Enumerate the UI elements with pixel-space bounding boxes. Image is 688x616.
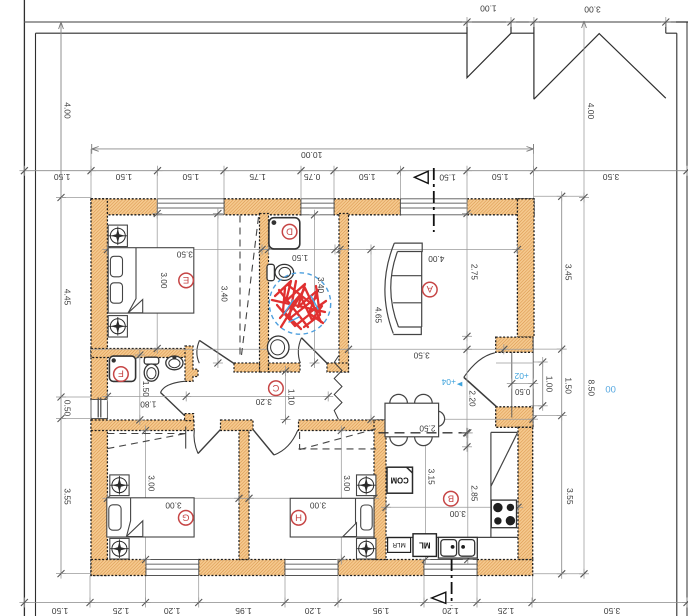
svg-text:1.50: 1.50: [54, 172, 71, 182]
svg-text:H: H: [295, 511, 302, 522]
svg-text:3.45: 3.45: [564, 264, 574, 281]
svg-text:1.50: 1.50: [492, 172, 509, 182]
svg-text:0.50: 0.50: [62, 400, 72, 417]
svg-text:3.40: 3.40: [220, 286, 230, 303]
svg-text:3.50: 3.50: [602, 172, 619, 182]
svg-text:1.50: 1.50: [182, 172, 199, 182]
svg-text:1.00: 1.00: [544, 376, 554, 393]
svg-text:1.50: 1.50: [292, 253, 309, 263]
svg-text:3.00: 3.00: [146, 475, 156, 492]
svg-text:MLR: MLR: [392, 541, 406, 548]
svg-text:COM: COM: [391, 475, 409, 484]
svg-text:0.50: 0.50: [514, 387, 530, 396]
svg-text:F: F: [118, 368, 124, 379]
svg-text:2.85: 2.85: [469, 485, 479, 502]
svg-text:2.50: 2.50: [419, 423, 436, 433]
svg-text:3.50: 3.50: [603, 606, 620, 616]
svg-text:D: D: [286, 225, 293, 236]
svg-text:E: E: [183, 274, 189, 285]
svg-text:1.80: 1.80: [140, 400, 157, 410]
svg-text:00: 00: [605, 383, 616, 394]
svg-text:1.50: 1.50: [564, 377, 574, 394]
svg-text:3.00: 3.00: [342, 475, 352, 492]
svg-text:3.00: 3.00: [159, 272, 169, 289]
svg-text:3.55: 3.55: [565, 488, 575, 505]
svg-text:ML: ML: [419, 540, 431, 549]
svg-text:1.20: 1.20: [304, 606, 321, 616]
svg-text:2.20: 2.20: [468, 390, 478, 407]
svg-text:3.15: 3.15: [427, 469, 437, 486]
svg-text:B: B: [448, 492, 454, 503]
svg-text:1.50: 1.50: [51, 606, 68, 616]
svg-text:1.95: 1.95: [235, 606, 252, 616]
svg-text:3.50: 3.50: [413, 351, 430, 361]
svg-text:G: G: [182, 511, 189, 522]
svg-text:+04: +04: [441, 377, 456, 387]
svg-text:3.50: 3.50: [176, 249, 193, 259]
svg-text:+02: +02: [514, 371, 529, 381]
svg-text:3.55: 3.55: [62, 488, 72, 505]
svg-text:4.00: 4.00: [586, 103, 596, 120]
svg-text:10.00: 10.00: [301, 150, 323, 160]
svg-text:3.20: 3.20: [255, 397, 272, 407]
svg-text:3.40: 3.40: [316, 277, 326, 294]
svg-text:A: A: [426, 283, 433, 294]
svg-text:1.50: 1.50: [359, 172, 376, 182]
svg-text:1.50: 1.50: [141, 381, 151, 398]
svg-text:3.00: 3.00: [165, 500, 182, 510]
svg-text:3.00: 3.00: [449, 509, 466, 519]
svg-text:4.45: 4.45: [62, 289, 72, 306]
svg-text:1.10: 1.10: [287, 389, 297, 406]
svg-text:4.00: 4.00: [63, 102, 73, 119]
svg-text:1.95: 1.95: [372, 606, 389, 616]
svg-text:1.25: 1.25: [497, 606, 514, 616]
svg-text:4.00: 4.00: [428, 254, 445, 264]
svg-text:1.20: 1.20: [164, 606, 181, 616]
svg-text:8.50: 8.50: [587, 380, 597, 397]
svg-text:3.00: 3.00: [310, 500, 327, 510]
svg-text:1.50: 1.50: [439, 173, 456, 183]
svg-text:1.00: 1.00: [480, 3, 497, 13]
svg-text:1.20: 1.20: [442, 606, 459, 616]
svg-text:4.65: 4.65: [374, 307, 384, 324]
svg-text:1.50: 1.50: [115, 172, 132, 182]
svg-text:C: C: [272, 382, 279, 393]
svg-text:1.25: 1.25: [112, 606, 129, 616]
svg-text:3.00: 3.00: [584, 5, 601, 15]
svg-text:1.75: 1.75: [249, 172, 266, 182]
svg-text:0.75: 0.75: [304, 172, 321, 182]
svg-text:2.75: 2.75: [469, 264, 479, 281]
